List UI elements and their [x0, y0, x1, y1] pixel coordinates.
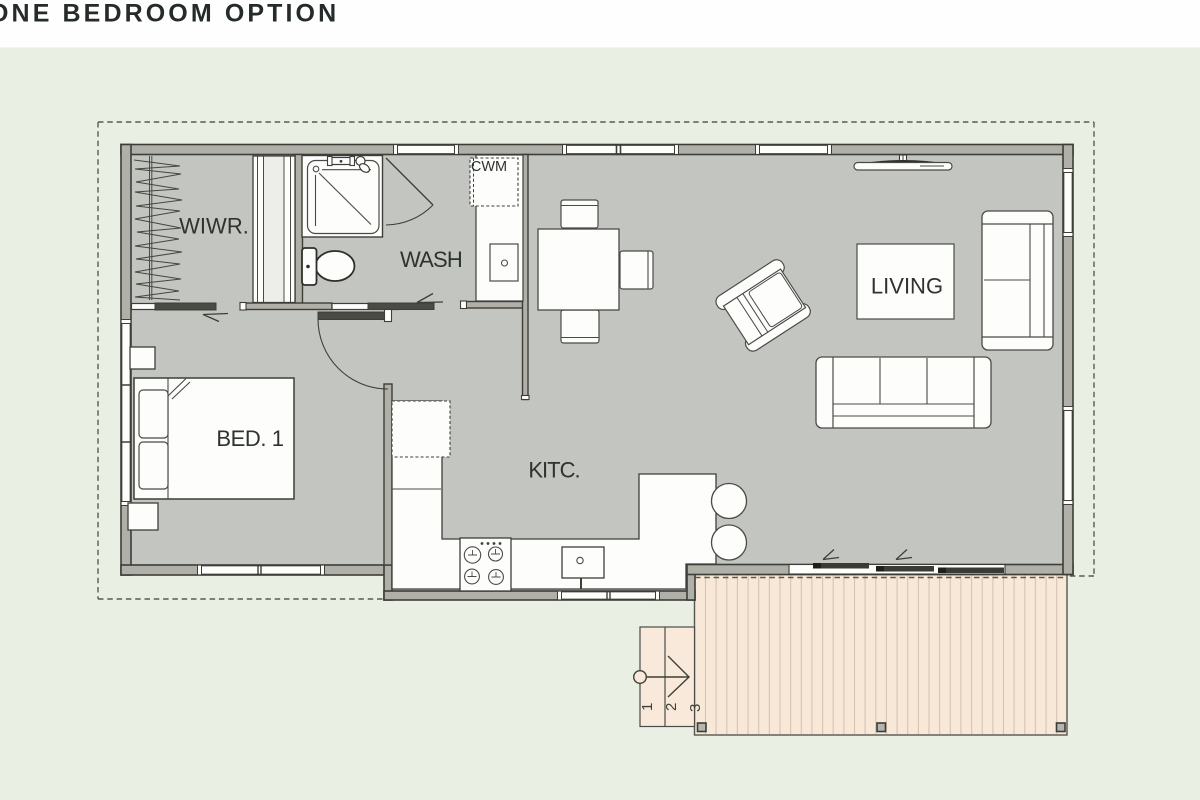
svg-text:BED. 1: BED. 1 — [216, 426, 283, 451]
svg-text:WIWR.: WIWR. — [179, 214, 249, 239]
svg-text:CWM: CWM — [471, 159, 507, 175]
svg-text:LIVING: LIVING — [871, 274, 943, 299]
svg-text:KITC.: KITC. — [528, 458, 579, 483]
svg-text:1: 1 — [639, 703, 656, 711]
svg-text:WASH: WASH — [400, 247, 462, 272]
svg-text:ONE BEDROOM OPTION: ONE BEDROOM OPTION — [0, 0, 339, 28]
svg-text:2: 2 — [663, 703, 680, 711]
svg-text:3: 3 — [687, 704, 704, 712]
